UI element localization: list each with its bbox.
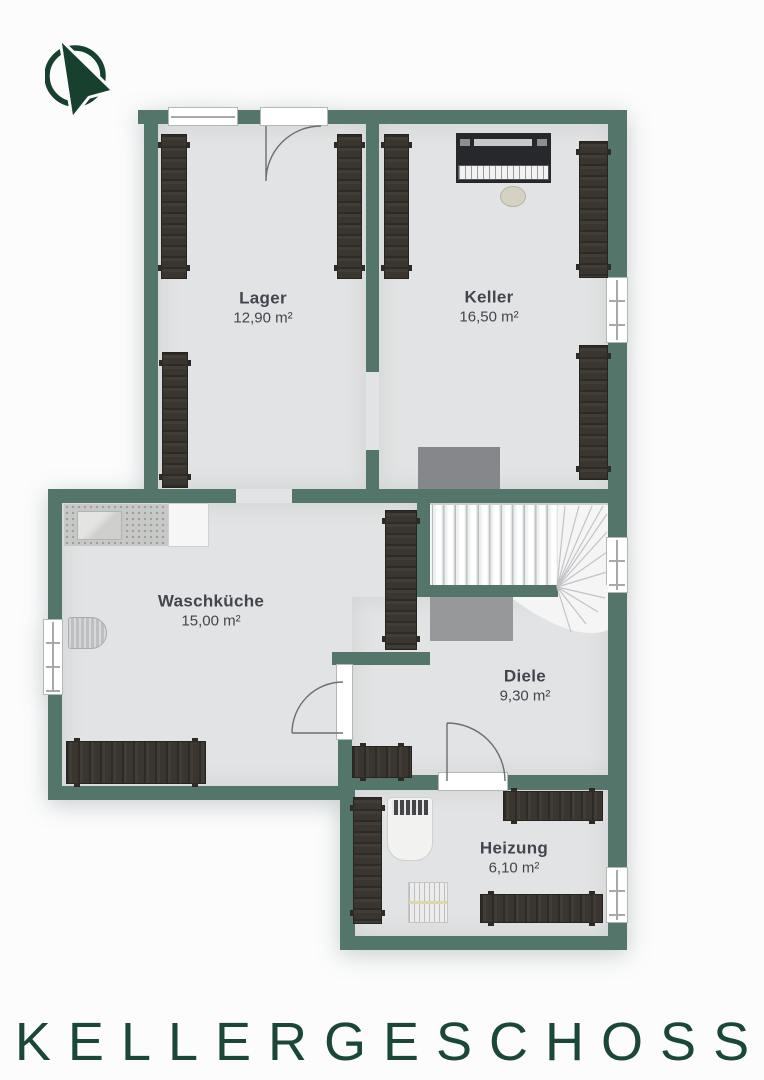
room-area: 6,10 m²: [480, 860, 548, 878]
floor-title: KELLERGESCHOSS: [0, 1014, 764, 1071]
room-label-heizung: Heizung 6,10 m²: [480, 839, 548, 878]
room-area: 12,90 m²: [233, 310, 292, 328]
door-swing-and-stair-lines: [0, 0, 764, 1080]
room-label-lager: Lager 12,90 m²: [233, 289, 292, 328]
room-name: Diele: [500, 667, 551, 687]
room-area: 16,50 m²: [459, 309, 518, 327]
floorplan: Lager 12,90 m² Keller 16,50 m² Waschküch…: [0, 0, 764, 1080]
room-name: Heizung: [480, 839, 548, 859]
room-name: Lager: [233, 289, 292, 309]
floorplan-canvas: Lager 12,90 m² Keller 16,50 m² Waschküch…: [0, 0, 764, 1080]
room-label-diele: Diele 9,30 m²: [500, 667, 551, 706]
room-name: Keller: [459, 288, 518, 308]
room-label-keller: Keller 16,50 m²: [459, 288, 518, 327]
room-area: 9,30 m²: [500, 688, 551, 706]
floor-title-text: KELLERGESCHOSS: [15, 1012, 764, 1072]
room-label-waschkueche: Waschküche 15,00 m²: [158, 592, 264, 631]
room-area: 15,00 m²: [158, 613, 264, 631]
room-name: Waschküche: [158, 592, 264, 612]
